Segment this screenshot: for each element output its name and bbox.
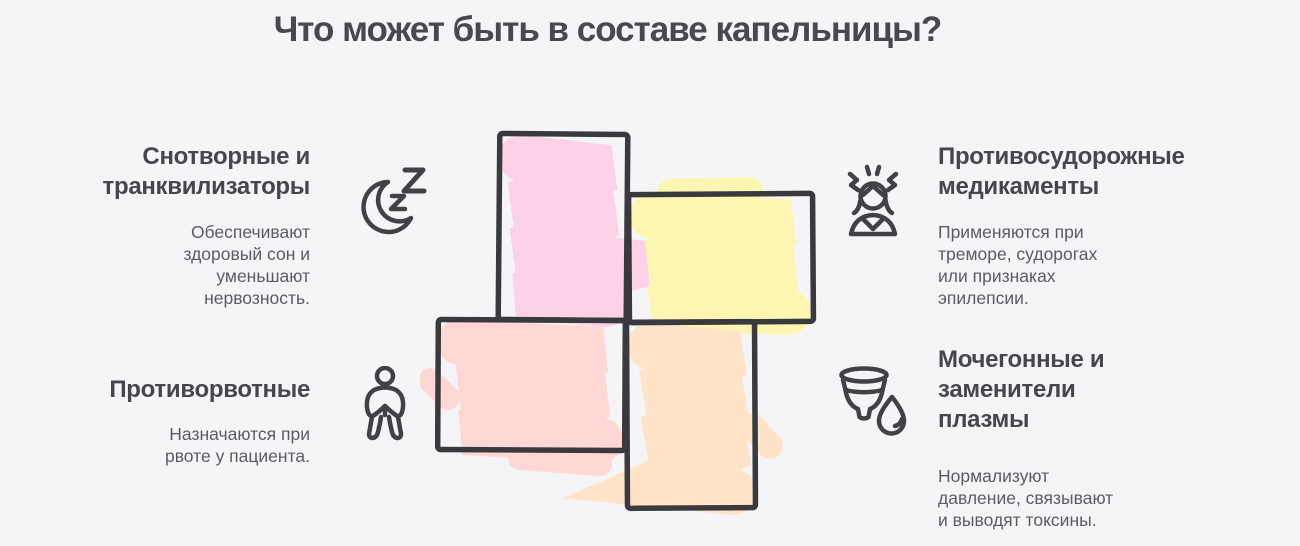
small-z-glyph	[391, 196, 405, 209]
head-shape	[377, 368, 393, 384]
diuretics-description: Нормализуют давление, связывают и выводя…	[938, 465, 1238, 531]
big-z-glyph	[404, 170, 424, 191]
stress-zigzag-right	[888, 174, 896, 190]
left-leg	[369, 417, 381, 438]
infographic-canvas: Что может быть в составе капельницы? Сно…	[0, 0, 1300, 546]
page-title: Что может быть в составе капельницы?	[0, 10, 1215, 50]
iv-drip-cross-diagram	[420, 110, 840, 530]
collar-v-neck	[863, 219, 883, 229]
bottom-block-scribble-fill	[648, 346, 742, 492]
antiemetics-heading: Противорвотные	[10, 375, 310, 405]
sedatives-description: Обеспечивают здоровый сон и уменьшают не…	[10, 221, 310, 309]
person-holding-stomach-icon	[360, 366, 408, 442]
stress-zigzag-left	[850, 174, 858, 190]
right-leg	[389, 417, 401, 438]
water-drop	[879, 397, 904, 434]
anticonvulsants-description: Применяются при треморе, судорогах или п…	[938, 221, 1238, 309]
cup-rim	[842, 369, 887, 382]
cup-and-drop-icon	[836, 362, 910, 440]
stress-ticks-center	[867, 167, 879, 174]
drop-highlight	[895, 419, 902, 426]
right-block-scribble-fill	[651, 216, 792, 312]
moon-zzz-icon	[343, 162, 429, 238]
antiemetics-description: Назначаются при рвоте у пациента.	[10, 423, 310, 467]
anticonvulsants-heading: Противосудорожные медикаменты	[938, 142, 1238, 202]
stressed-person-icon	[842, 158, 904, 240]
sedatives-heading: Снотворные и транквилизаторы	[10, 142, 310, 202]
left-block-scribble-fill	[460, 342, 604, 440]
diuretics-heading: Мочегонные и заменители плазмы	[938, 345, 1238, 435]
